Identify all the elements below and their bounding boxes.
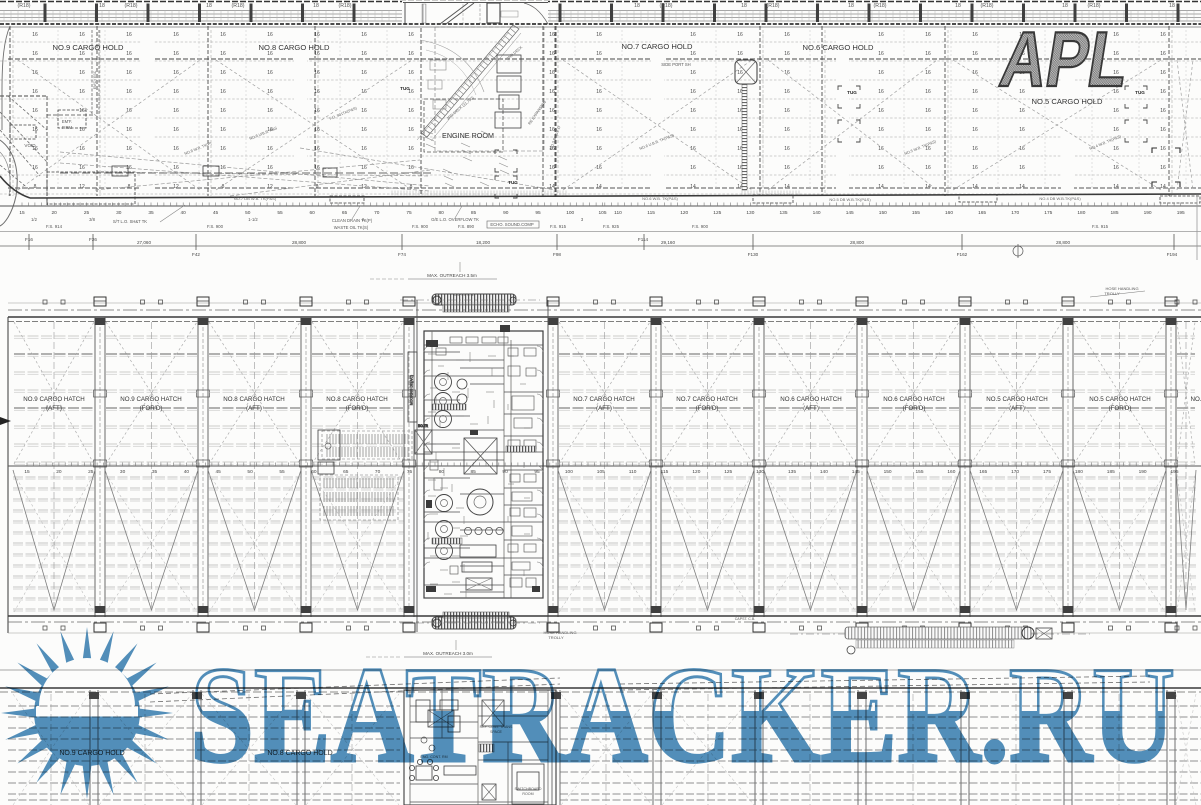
svg-text:16: 16 [925,70,931,76]
svg-text:175: 175 [1043,469,1051,475]
svg-text:16: 16 [549,165,555,171]
svg-text:VOID: VOID [24,143,36,148]
svg-text:16: 16 [1113,127,1119,133]
svg-text:185: 185 [1107,469,1115,475]
svg-text:150: 150 [879,210,887,216]
svg-text:40: 40 [184,469,190,475]
svg-text:8: 8 [34,184,37,190]
svg-text:16: 16 [361,32,367,38]
svg-text:16: 16 [925,165,931,171]
svg-text:F.S. 900: F.S. 900 [207,224,224,229]
svg-text:(R18): (R18) [18,3,31,9]
svg-text:16: 16 [549,70,555,76]
svg-text:25: 25 [84,210,90,216]
svg-text:NO.: NO. [1190,396,1201,403]
svg-text:(R18): (R18) [125,3,138,9]
svg-text:18: 18 [848,3,854,9]
svg-text:16: 16 [596,51,602,57]
svg-text:16: 16 [784,165,790,171]
svg-text:45: 45 [213,210,219,216]
svg-text:16: 16 [1113,146,1119,152]
svg-text:30: 30 [116,210,122,216]
svg-text:18: 18 [634,3,640,9]
svg-text:27,060: 27,060 [137,240,151,245]
svg-text:16: 16 [267,70,273,76]
svg-text:(FOR'D): (FOR'D) [346,405,369,412]
svg-text:16: 16 [220,89,226,95]
svg-text:16: 16 [1160,89,1166,95]
svg-text:135: 135 [779,210,787,216]
svg-text:16: 16 [784,51,790,57]
svg-text:16: 16 [737,32,743,38]
svg-text:30: 30 [120,469,126,475]
svg-text:16: 16 [314,108,320,114]
svg-text:16: 16 [126,127,132,133]
svg-text:16: 16 [361,127,367,133]
svg-text:18: 18 [741,3,747,9]
svg-text:16: 16 [1160,51,1166,57]
svg-text:55: 55 [277,210,283,216]
svg-text:50: 50 [247,469,253,475]
svg-text:15: 15 [24,469,30,475]
svg-text:CAPST. C.B.: CAPST. C.B. [454,293,475,297]
svg-text:115: 115 [647,210,655,216]
svg-text:18: 18 [955,3,961,9]
svg-text:NO.9 CARGO HOLD: NO.9 CARGO HOLD [53,43,124,52]
svg-text:12: 12 [267,184,273,190]
svg-text:16: 16 [549,127,555,133]
svg-text:100: 100 [565,469,573,475]
svg-text:16: 16 [173,127,179,133]
svg-text:185: 185 [1110,210,1118,216]
svg-text:16: 16 [1019,165,1025,171]
svg-text:20: 20 [56,469,62,475]
svg-text:16: 16 [220,127,226,133]
svg-text:16: 16 [878,32,884,38]
svg-text:16: 16 [267,89,273,95]
svg-text:NO.7 CARGO HOLD: NO.7 CARGO HOLD [622,42,693,51]
svg-text:(R18): (R18) [767,3,780,9]
svg-text:16: 16 [972,165,978,171]
svg-text:16: 16 [267,146,273,152]
svg-text:16: 16 [878,51,884,57]
svg-text:(AFT): (AFT) [246,405,262,412]
svg-text:50: 50 [245,210,251,216]
svg-text:45: 45 [216,469,222,475]
svg-text:140: 140 [813,210,821,216]
svg-text:16: 16 [173,51,179,57]
svg-text:16: 16 [690,89,696,95]
svg-text:F.S. 915: F.S. 915 [550,224,567,229]
svg-text:16: 16 [1160,70,1166,76]
svg-text:170: 170 [1011,210,1019,216]
svg-text:16: 16 [361,108,367,114]
svg-text:15: 15 [19,210,25,216]
svg-text:130: 130 [756,469,764,475]
svg-text:115: 115 [661,469,669,475]
svg-text:(R18): (R18) [874,3,887,9]
svg-text:16: 16 [361,51,367,57]
svg-text:(AFT): (AFT) [1009,405,1025,412]
svg-text:16: 16 [878,70,884,76]
svg-text:16: 16 [549,108,555,114]
svg-text:16: 16 [173,32,179,38]
svg-text:12: 12 [173,184,179,190]
svg-text:16: 16 [126,89,132,95]
svg-text:40: 40 [181,210,187,216]
svg-text:35: 35 [152,469,158,475]
svg-text:16: 16 [925,127,931,133]
svg-text:28,800: 28,800 [850,240,864,245]
svg-text:16: 16 [690,32,696,38]
svg-text:(R18): (R18) [1088,3,1101,9]
svg-text:35: 35 [148,210,154,216]
svg-text:85: 85 [471,210,477,216]
svg-text:TUG: TUG [400,86,410,91]
svg-text:16: 16 [408,127,414,133]
svg-text:16: 16 [1160,165,1166,171]
svg-text:16: 16 [972,89,978,95]
svg-text:16: 16 [126,32,132,38]
svg-text:16: 16 [925,32,931,38]
svg-text:16: 16 [596,146,602,152]
svg-text:29,160: 29,160 [661,240,675,245]
svg-text:195: 195 [1177,210,1185,216]
svg-text:F.S. 914: F.S. 914 [46,224,63,229]
svg-text:F130: F130 [748,252,759,257]
svg-text:16: 16 [690,165,696,171]
svg-text:125: 125 [724,469,732,475]
svg-text:16: 16 [220,32,226,38]
svg-text:NO.9 CARGO HATCH: NO.9 CARGO HATCH [23,396,84,403]
svg-text:(AFT): (AFT) [46,405,62,412]
svg-text:16: 16 [784,32,790,38]
svg-text:16: 16 [596,108,602,114]
svg-text:16: 16 [220,165,226,171]
svg-text:190: 190 [1144,210,1152,216]
svg-text:14: 14 [784,184,790,190]
svg-text:16: 16 [1160,108,1166,114]
svg-text:F42: F42 [192,252,200,257]
svg-text:195: 195 [1170,469,1178,475]
svg-text:(FOR'D): (FOR'D) [903,405,926,412]
svg-text:TUG: TUG [1135,90,1145,95]
svg-text:60: 60 [311,469,317,475]
svg-text:16: 16 [314,89,320,95]
svg-text:NO.7 CARGO HATCH: NO.7 CARGO HATCH [573,396,634,403]
svg-text:135: 135 [788,469,796,475]
svg-text:160: 160 [945,210,953,216]
svg-text:NO.4 DB W.B.TK(P&S): NO.4 DB W.B.TK(P&S) [1039,196,1081,201]
svg-text:60: 60 [310,210,316,216]
svg-text:1-1/2: 1-1/2 [248,217,258,222]
svg-text:16: 16 [549,51,555,57]
svg-text:16: 16 [972,127,978,133]
svg-text:16: 16 [549,32,555,38]
svg-text:16: 16 [220,146,226,152]
svg-text:NO.8 CARGO HATCH: NO.8 CARGO HATCH [223,396,284,403]
svg-text:150: 150 [884,469,892,475]
svg-text:EM'CY ESC: EM'CY ESC [93,70,97,89]
svg-text:190: 190 [1139,469,1147,475]
svg-text:TUG: TUG [847,90,857,95]
svg-text:90: 90 [503,210,509,216]
svg-text:S/T L.O. SH&T TK: S/T L.O. SH&T TK [113,219,147,224]
svg-text:16: 16 [32,89,38,95]
svg-text:16: 16 [925,108,931,114]
svg-text:F26: F26 [89,237,97,242]
svg-text:16: 16 [737,70,743,76]
svg-text:12: 12 [361,184,367,190]
svg-text:16: 16 [32,32,38,38]
svg-text:NO.6 CARGO HATCH: NO.6 CARGO HATCH [883,396,944,403]
svg-text:3/8: 3/8 [89,217,95,222]
svg-text:16: 16 [314,70,320,76]
svg-text:75: 75 [407,469,413,475]
svg-text:ENGINE ROOM: ENGINE ROOM [442,131,494,140]
svg-text:100: 100 [566,210,574,216]
svg-text:16: 16 [408,146,414,152]
svg-text:16: 16 [361,165,367,171]
svg-text:16: 16 [267,108,273,114]
svg-text:F194: F194 [1167,252,1178,257]
svg-text:16: 16 [878,127,884,133]
svg-text:14: 14 [878,184,884,190]
svg-text:NO.7 DB W.B. TK(P&S): NO.7 DB W.B. TK(P&S) [234,196,277,201]
svg-text:NO.8 CARGO HATCH: NO.8 CARGO HATCH [326,396,387,403]
svg-text:16: 16 [126,146,132,152]
svg-text:180: 180 [1075,469,1083,475]
svg-text:130: 130 [746,210,754,216]
svg-text:(AFT): (AFT) [596,405,612,412]
svg-text:14: 14 [1113,184,1119,190]
svg-text:16: 16 [79,165,85,171]
svg-text:(FOR'D): (FOR'D) [696,405,719,412]
svg-text:NO.5 CARGO HATCH: NO.5 CARGO HATCH [1089,396,1150,403]
svg-text:(R18): (R18) [981,3,994,9]
svg-text:160: 160 [947,469,955,475]
svg-text:(AFT): (AFT) [803,405,819,412]
svg-text:16: 16 [596,127,602,133]
svg-text:14: 14 [596,184,602,190]
svg-text:(R18): (R18) [232,3,245,9]
svg-text:16: 16 [79,146,85,152]
svg-text:28,800: 28,800 [1056,240,1070,245]
svg-text:14: 14 [1160,184,1166,190]
svg-text:20: 20 [52,210,58,216]
svg-text:NO.6 CARGO HATCH: NO.6 CARGO HATCH [780,396,841,403]
svg-text:16: 16 [737,51,743,57]
svg-text:ECHO. SOUND.COMP: ECHO. SOUND.COMP [490,222,533,227]
svg-text:16: 16 [878,89,884,95]
svg-text:F16: F16 [25,237,33,242]
svg-text:16: 16 [784,127,790,133]
svg-text:16: 16 [878,165,884,171]
svg-text:F74: F74 [398,252,406,257]
svg-text:155: 155 [915,469,923,475]
svg-text:16: 16 [1019,127,1025,133]
svg-text:155: 155 [912,210,920,216]
svg-text:28,800: 28,800 [292,240,306,245]
svg-text:16: 16 [925,51,931,57]
svg-text:75: 75 [406,210,412,216]
svg-text:14: 14 [1019,184,1025,190]
svg-text:NO.5 DB W.B.TK(P&S): NO.5 DB W.B.TK(P&S) [829,197,871,202]
svg-text:16: 16 [925,89,931,95]
svg-text:18: 18 [99,3,105,9]
svg-text:18: 18 [206,3,212,9]
svg-text:F.S. 915: F.S. 915 [1092,224,1109,229]
svg-text:16: 16 [1160,127,1166,133]
svg-text:14: 14 [690,184,696,190]
svg-text:16: 16 [267,32,273,38]
svg-text:(R18): (R18) [339,3,352,9]
svg-text:165: 165 [979,469,987,475]
svg-text:16: 16 [32,108,38,114]
svg-text:16: 16 [596,89,602,95]
svg-text:16: 16 [690,70,696,76]
svg-text:105: 105 [598,210,606,216]
svg-text:16: 16 [361,146,367,152]
svg-text:16: 16 [173,146,179,152]
svg-text:CAPST. C.B.: CAPST. C.B. [735,617,756,621]
svg-text:16: 16 [220,108,226,114]
svg-text:16: 16 [690,127,696,133]
svg-text:NO.6 W.B. TK(P&S): NO.6 W.B. TK(P&S) [642,196,678,201]
svg-text:F.S. 925: F.S. 925 [603,224,620,229]
svg-text:16: 16 [32,127,38,133]
svg-text:125: 125 [713,210,721,216]
svg-text:16: 16 [972,108,978,114]
svg-text:NO.7 CARGO HATCH: NO.7 CARGO HATCH [676,396,737,403]
svg-text:16: 16 [173,165,179,171]
svg-text:80: 80 [439,469,445,475]
svg-text:70: 70 [374,210,380,216]
svg-text:25: 25 [88,469,94,475]
svg-text:120: 120 [692,469,700,475]
svg-text:16: 16 [784,108,790,114]
svg-text:16: 16 [408,108,414,114]
svg-text:16: 16 [784,146,790,152]
svg-text:EM'F.: EM'F. [62,119,72,124]
svg-text:16: 16 [408,32,414,38]
svg-text:16: 16 [408,51,414,57]
svg-text:16: 16 [220,70,226,76]
svg-text:WASTE OIL TK(S): WASTE OIL TK(S) [334,225,369,230]
svg-text:16: 16 [596,165,602,171]
svg-text:16: 16 [1019,146,1025,152]
svg-text:14: 14 [972,184,978,190]
svg-text:(R18): (R18) [660,3,673,9]
svg-text:ROOM: ROOM [522,792,533,796]
svg-text:16: 16 [972,146,978,152]
svg-text:12: 12 [79,184,85,190]
svg-text:16: 16 [314,32,320,38]
svg-text:16: 16 [126,51,132,57]
svg-text:16: 16 [361,70,367,76]
svg-text:65: 65 [342,210,348,216]
svg-text:TUG: TUG [508,180,518,185]
svg-text:16: 16 [173,70,179,76]
svg-text:16: 16 [972,32,978,38]
svg-text:16: 16 [690,51,696,57]
svg-text:18: 18 [1169,3,1175,9]
svg-text:180: 180 [1077,210,1085,216]
svg-text:F.S. 900: F.S. 900 [692,224,709,229]
svg-text:16: 16 [79,89,85,95]
svg-text:145: 145 [852,469,860,475]
svg-text:165: 165 [978,210,986,216]
svg-text:65: 65 [343,469,349,475]
svg-text:16: 16 [267,165,273,171]
svg-text:16: 16 [1160,146,1166,152]
svg-text:(FOR'D): (FOR'D) [140,405,163,412]
svg-text:APL: APL [995,15,1135,102]
svg-text:120: 120 [680,210,688,216]
svg-text:175: 175 [1044,210,1052,216]
svg-text:16: 16 [596,32,602,38]
svg-text:55: 55 [279,469,285,475]
svg-text:16: 16 [79,108,85,114]
svg-text:170: 170 [1011,469,1019,475]
svg-text:16: 16 [1113,165,1119,171]
svg-text:16: 16 [1113,108,1119,114]
svg-text:SIDE PORT SH: SIDE PORT SH [661,62,690,67]
svg-text:16: 16 [173,89,179,95]
svg-text:F114: F114 [638,237,649,242]
svg-text:16: 16 [126,70,132,76]
svg-text:P.RM: P.RM [62,125,72,130]
svg-text:18: 18 [1062,3,1068,9]
svg-text:16: 16 [1160,32,1166,38]
svg-text:16: 16 [220,51,226,57]
svg-text:16: 16 [32,51,38,57]
svg-text:80: 80 [439,210,445,216]
svg-text:110: 110 [614,210,622,216]
svg-text:NO.5 CARGO HATCH: NO.5 CARGO HATCH [986,396,1047,403]
svg-text:110: 110 [629,469,637,475]
svg-text:18,200: 18,200 [476,240,490,245]
svg-text:NO.9 CARGO HATCH: NO.9 CARGO HATCH [120,396,181,403]
svg-text:NO.6 CARGO HOLD: NO.6 CARGO HOLD [803,43,874,52]
svg-text:F.S. 890: F.S. 890 [458,224,475,229]
svg-text:70: 70 [375,469,381,475]
svg-text:16: 16 [549,89,555,95]
svg-text:F98: F98 [553,252,561,257]
svg-text:140: 140 [820,469,828,475]
svg-text:MAX. OUTREACH 3.5m: MAX. OUTREACH 3.5m [427,273,477,278]
svg-text:16: 16 [878,108,884,114]
svg-text:16: 16 [972,51,978,57]
svg-text:F.S. 900: F.S. 900 [412,224,429,229]
svg-text:8: 8 [222,184,225,190]
svg-text:16: 16 [79,32,85,38]
svg-text:16: 16 [314,165,320,171]
svg-text:16: 16 [690,108,696,114]
svg-text:(FOR'D): (FOR'D) [1109,405,1132,412]
svg-text:16: 16 [314,127,320,133]
svg-text:95: 95 [535,210,541,216]
svg-text:16: 16 [596,70,602,76]
svg-text:18: 18 [313,3,319,9]
svg-text:16: 16 [408,70,414,76]
svg-text:145: 145 [846,210,854,216]
svg-text:NO.8 CARGO HOLD: NO.8 CARGO HOLD [259,43,330,52]
svg-text:BO.TR: BO.TR [418,424,428,428]
svg-text:105: 105 [597,469,605,475]
svg-text:16: 16 [784,89,790,95]
svg-text:16: 16 [79,70,85,76]
